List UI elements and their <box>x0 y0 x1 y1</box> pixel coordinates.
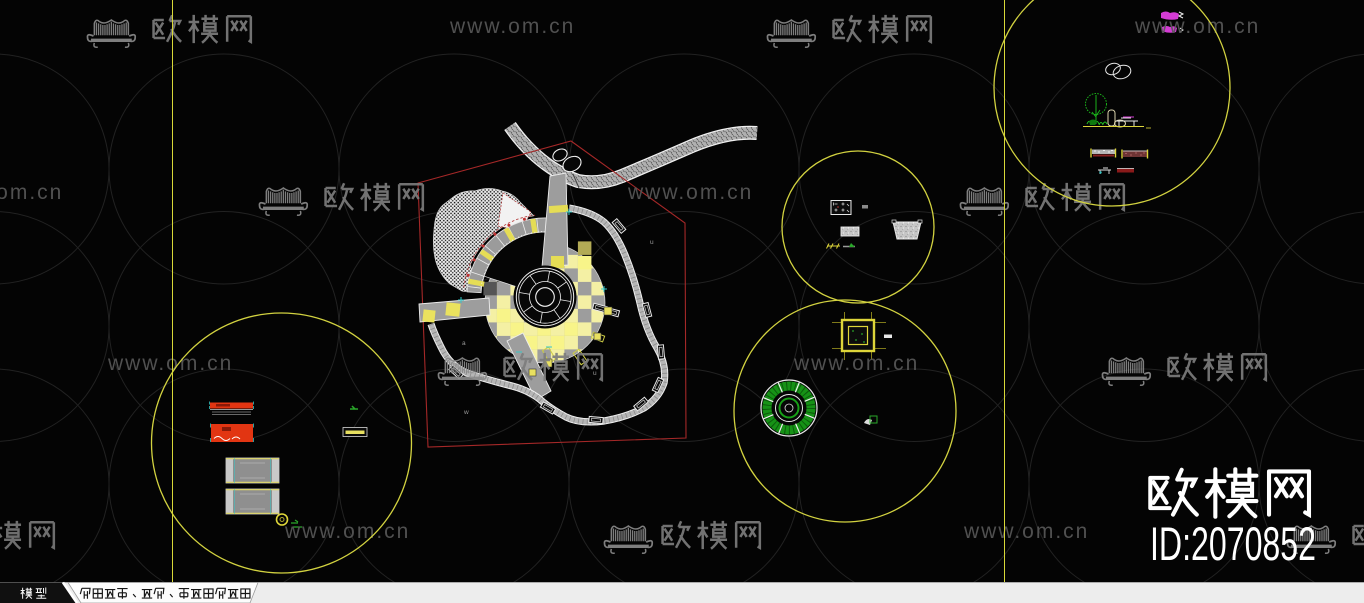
svg-text:www.om.cn: www.om.cn <box>793 352 919 375</box>
svg-text:www.om.cn: www.om.cn <box>1134 15 1260 38</box>
svg-text:www.om.cn: www.om.cn <box>627 181 753 204</box>
svg-text:www.om.cn: www.om.cn <box>0 181 63 204</box>
svg-text:www.om.cn: www.om.cn <box>449 15 575 38</box>
svg-text:www.om.cn: www.om.cn <box>284 520 410 543</box>
svg-text:u: u <box>593 370 597 377</box>
svg-text:u: u <box>650 239 654 246</box>
svg-text:www.om.cn: www.om.cn <box>107 352 233 375</box>
svg-text:www.om.cn: www.om.cn <box>963 520 1089 543</box>
svg-text:ID:2070852: ID:2070852 <box>1150 517 1316 570</box>
svg-text:w: w <box>463 409 469 416</box>
svg-text:a: a <box>462 340 466 347</box>
